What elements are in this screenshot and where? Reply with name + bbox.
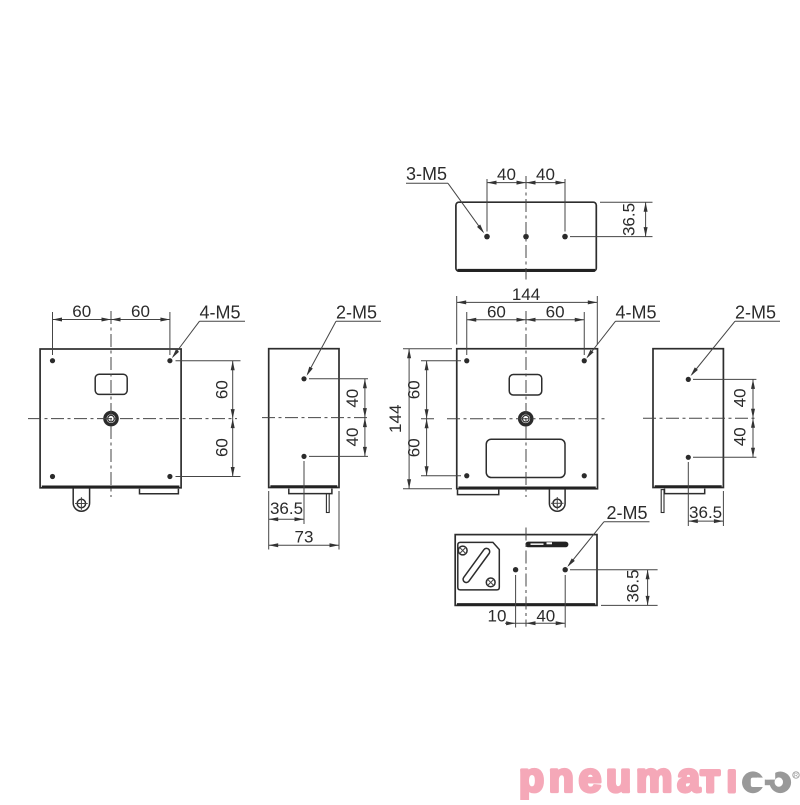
svg-text:40: 40 [343,428,362,447]
svg-text:10: 10 [488,606,507,625]
svg-text:2-M5: 2-M5 [735,303,776,323]
svg-text:40: 40 [536,606,555,625]
svg-text:60: 60 [546,302,565,321]
svg-text:2-M5: 2-M5 [336,303,377,323]
svg-text:36.5: 36.5 [689,503,722,522]
svg-text:36.5: 36.5 [270,499,303,518]
svg-text:60: 60 [487,302,506,321]
svg-text:4-M5: 4-M5 [616,303,657,323]
svg-text:73: 73 [295,528,314,547]
svg-text:60: 60 [405,438,424,457]
svg-text:40: 40 [731,388,750,407]
svg-text:3-M5: 3-M5 [406,164,447,184]
svg-text:40: 40 [497,165,516,184]
svg-text:60: 60 [72,302,91,321]
svg-text:36.5: 36.5 [624,569,643,602]
svg-text:144: 144 [386,405,405,433]
svg-text:40: 40 [536,165,555,184]
svg-text:R: R [794,773,798,779]
svg-text:TI: TI [701,766,736,799]
svg-text:40: 40 [731,427,750,446]
svg-text:60: 60 [131,302,150,321]
svg-text:4-M5: 4-M5 [200,303,241,323]
svg-text:60: 60 [405,380,424,399]
svg-text:60: 60 [213,438,232,457]
svg-text:2-M5: 2-M5 [607,503,648,523]
svg-text:60: 60 [213,380,232,399]
svg-text:40: 40 [343,389,362,408]
svg-text:144: 144 [512,285,540,304]
svg-text:36.5: 36.5 [620,203,639,236]
